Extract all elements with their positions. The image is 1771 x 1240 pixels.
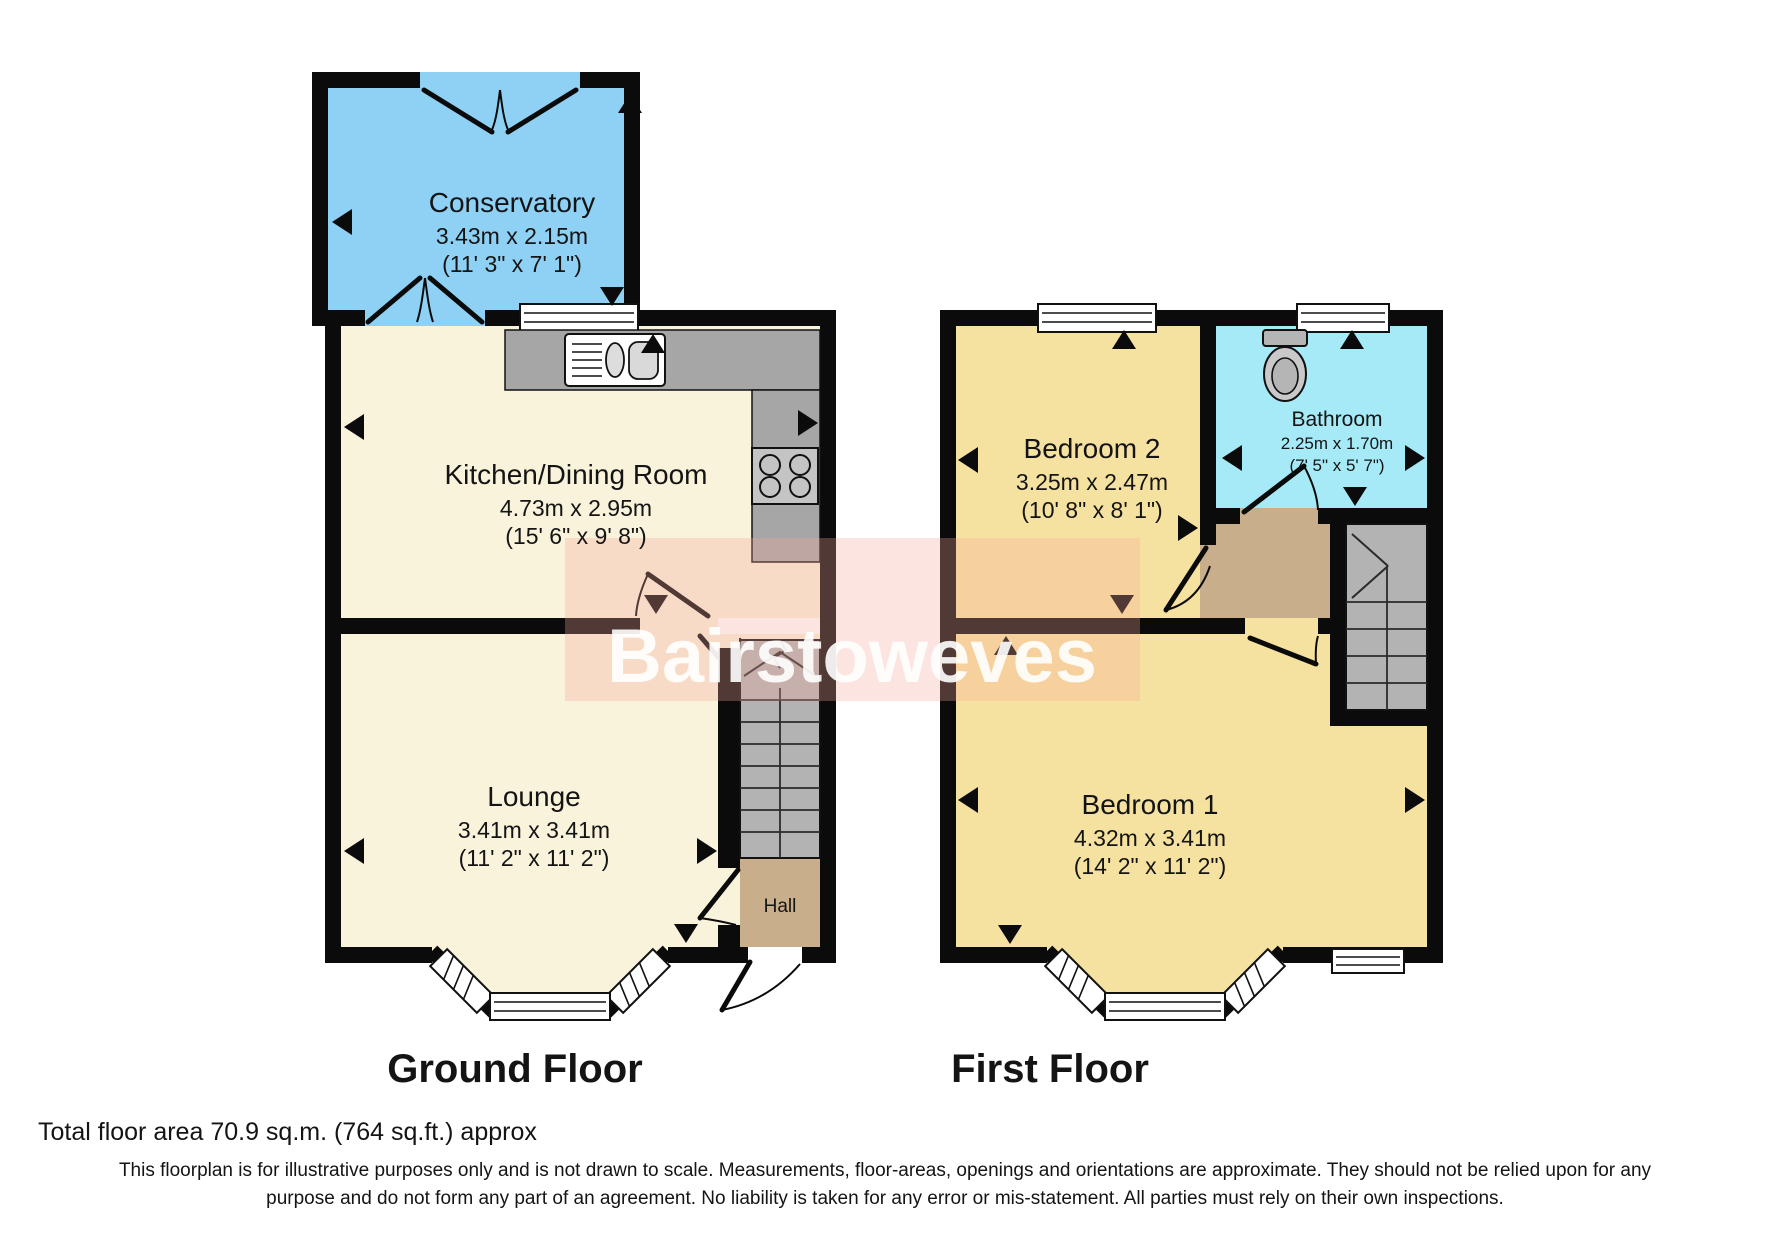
disclaimer-line-2: purpose and do not form any part of an a… (266, 1188, 1504, 1209)
bathroom-imperial: (7' 5" x 5' 7") (1289, 456, 1384, 475)
staircase (1346, 524, 1427, 710)
disclaimer-line-1: This floorplan is for illustrative purpo… (119, 1160, 1652, 1181)
wall (312, 72, 328, 326)
kitchen-imperial: (15' 6" x 9' 8") (505, 523, 646, 549)
bedroom1-imperial: (14' 2" x 11' 2") (1074, 853, 1227, 879)
window-icon (1332, 949, 1404, 973)
hob-icon (752, 448, 818, 504)
total-floor-area: Total floor area 70.9 sq.m. (764 sq.ft.)… (38, 1118, 537, 1146)
watermark: Bairstoweves (565, 538, 1140, 701)
wall (325, 310, 341, 963)
window-icon (520, 304, 638, 332)
floorplan-page: Bairstoweves Conservatory 3.43m x 2.15m … (0, 0, 1771, 1240)
bedroom1-label: Bedroom 1 (1082, 789, 1219, 820)
lounge-metric: 3.41m x 3.41m (458, 817, 610, 843)
wall (718, 925, 740, 947)
kitchen-label: Kitchen/Dining Room (444, 459, 707, 490)
hall-label: Hall (764, 896, 797, 917)
bedroom2-metric: 3.25m x 2.47m (1016, 469, 1168, 495)
conservatory-metric: 3.43m x 2.15m (436, 223, 588, 249)
first-floor-title: First Floor (951, 1047, 1149, 1091)
bathroom-label: Bathroom (1291, 408, 1382, 431)
door-opening (1245, 618, 1318, 634)
bay-window-icon (1045, 947, 1285, 1020)
wall (1427, 310, 1443, 963)
landing (1200, 524, 1330, 618)
conservatory-imperial: (11' 3" x 7' 1") (442, 251, 582, 277)
ground-floor-title: Ground Floor (387, 1047, 643, 1091)
wall (1330, 524, 1346, 710)
door-opening (420, 72, 580, 88)
floorplan-canvas: Bairstoweves Conservatory 3.43m x 2.15m … (0, 0, 1771, 1240)
wall (1330, 710, 1443, 726)
wall (1200, 326, 1216, 545)
bay-window-icon (430, 947, 670, 1020)
window-icon (1297, 304, 1389, 332)
bedroom2-label: Bedroom 2 (1024, 433, 1161, 464)
watermark-text: Bairstoweves (607, 614, 1097, 699)
door-opening (718, 868, 740, 925)
entrance-door-icon (722, 962, 800, 1010)
bathroom-metric: 2.25m x 1.70m (1281, 434, 1393, 453)
toilet-icon (1263, 330, 1307, 401)
conservatory-label: Conservatory (429, 187, 596, 218)
bedroom2-imperial: (10' 8" x 8' 1") (1021, 497, 1162, 523)
bedroom1-metric: 4.32m x 3.41m (1074, 825, 1226, 851)
entrance-opening (748, 947, 802, 963)
lounge-label: Lounge (487, 781, 580, 812)
door-opening (1240, 508, 1318, 524)
window-icon (1038, 304, 1156, 332)
lounge-imperial: (11' 2" x 11' 2") (459, 845, 610, 871)
kitchen-metric: 4.73m x 2.95m (500, 495, 652, 521)
